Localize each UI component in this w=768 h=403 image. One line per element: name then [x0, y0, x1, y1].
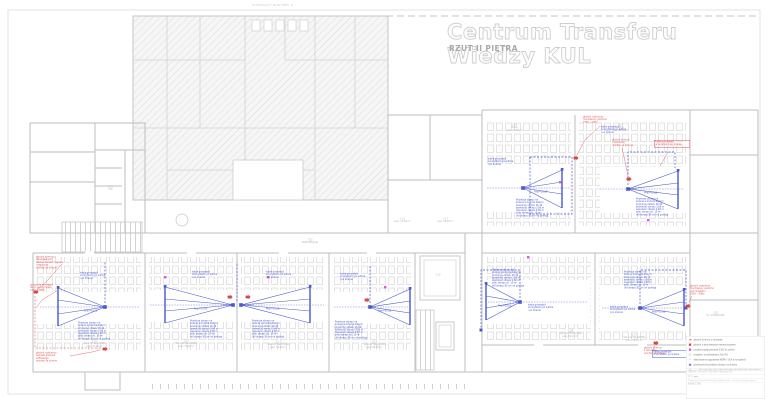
floor-plan-sheet: ISTNIEJĄCY BUDYNEK A 2.10 SALA WYKŁADOWA…: [0, 0, 768, 403]
dimension-ticks: [150, 384, 472, 389]
sheet-subtitle: RZUT II PIĘTRA: [449, 44, 518, 53]
